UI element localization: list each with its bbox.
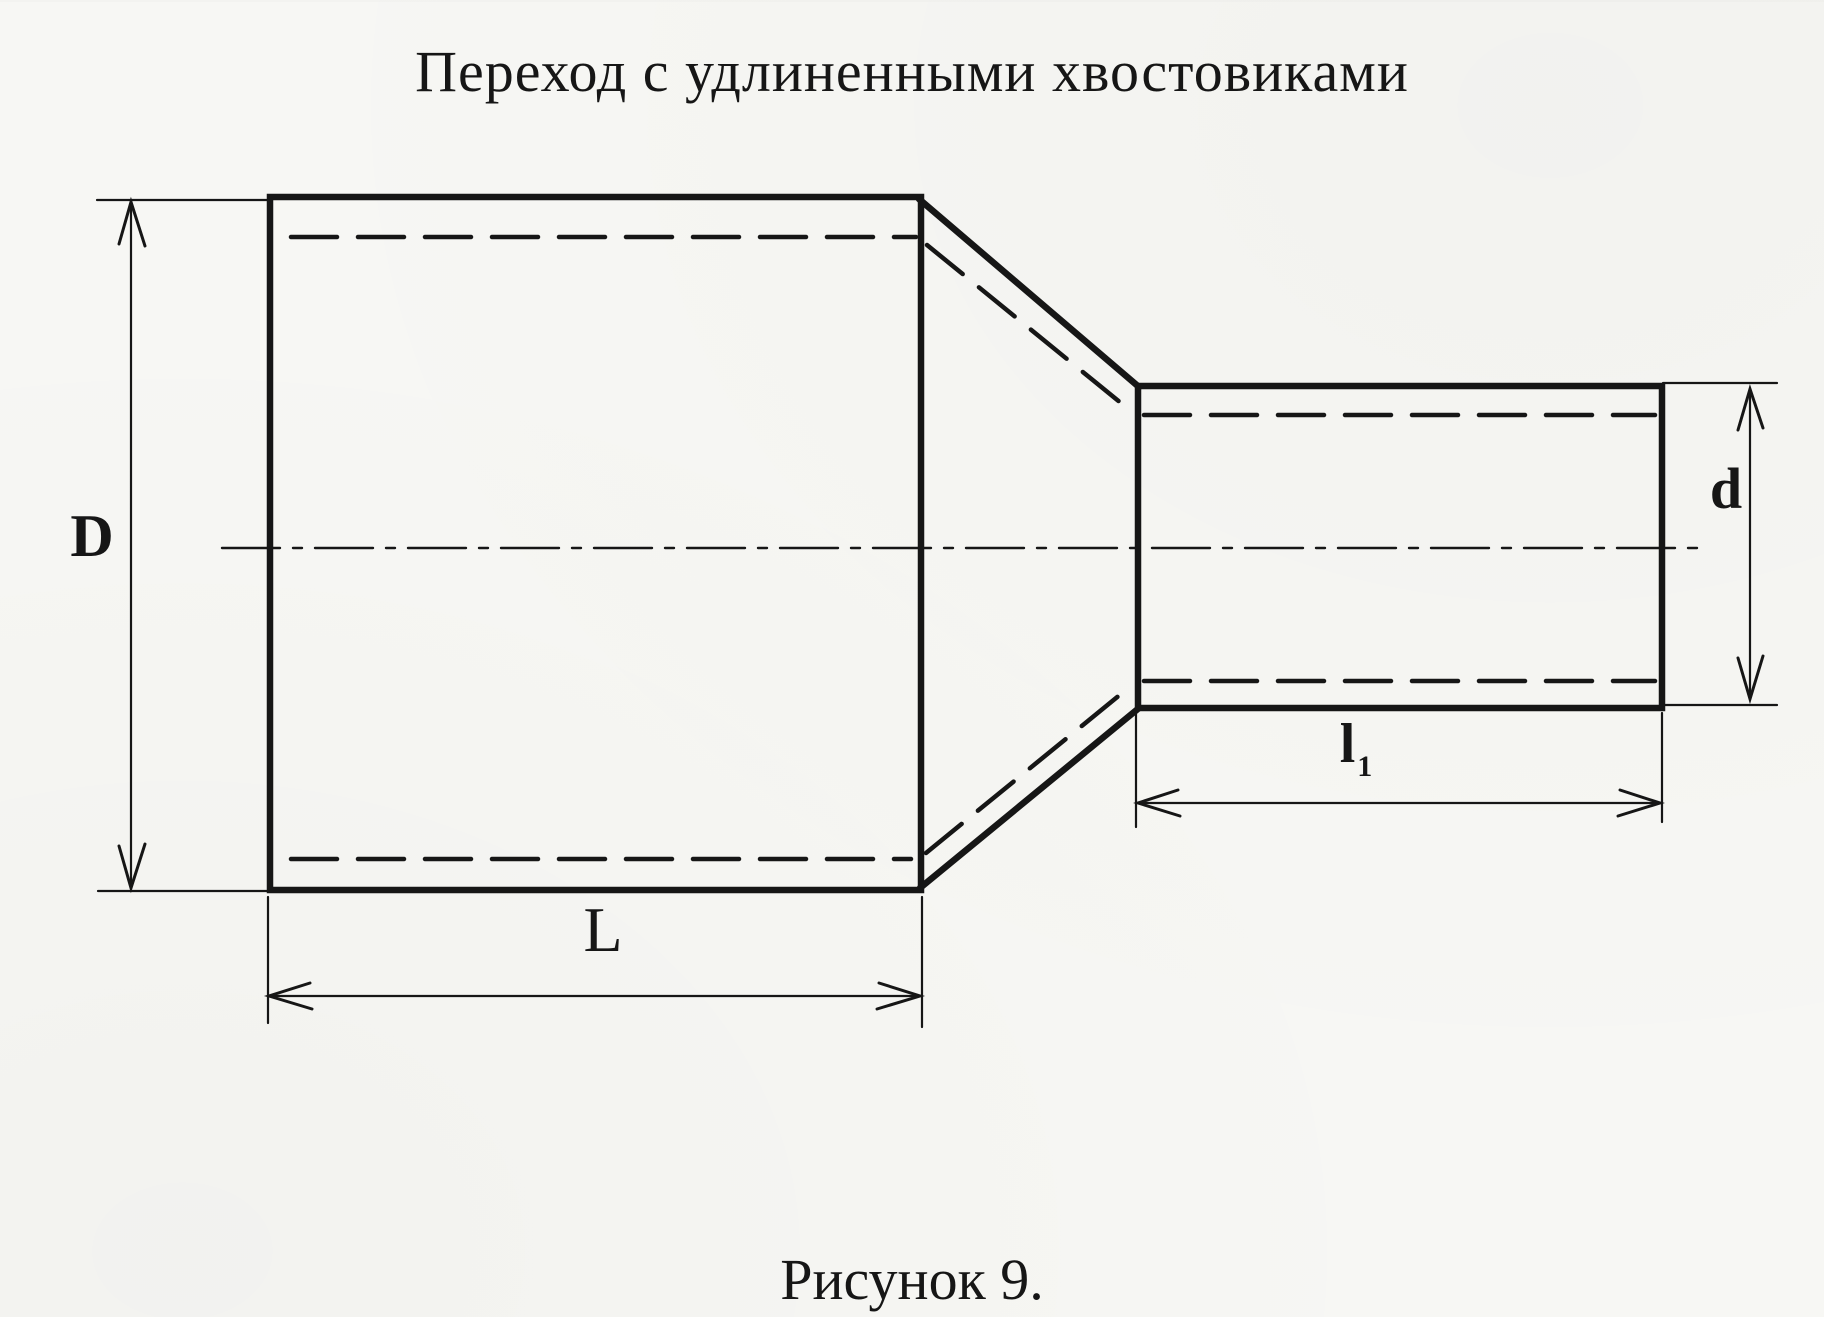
label-small-length: l1: [1326, 716, 1386, 782]
label-small-length-subscript: 1: [1357, 750, 1372, 783]
cone-top-edge: [919, 199, 1139, 387]
scanned-drawing-page: Переход с удлиненными хвостовиками: [0, 0, 1824, 1317]
cone-inner-top: [927, 245, 1132, 412]
label-large-diameter: D: [60, 506, 124, 566]
label-small-length-base: l: [1340, 713, 1356, 775]
dimension-l1: [1136, 713, 1662, 827]
cone-inner-bottom: [926, 685, 1132, 853]
label-large-length: L: [568, 898, 638, 962]
large-cylinder-outline: [270, 197, 921, 890]
label-small-diameter: d: [1694, 460, 1758, 518]
part-outline: [270, 197, 1662, 890]
small-cylinder-outline: [1138, 386, 1662, 708]
dimension-d: [1663, 383, 1777, 705]
cone-bottom-edge: [920, 708, 1139, 888]
reducer-diagram: [0, 0, 1824, 1317]
figure-caption: Рисунок 9.: [0, 1246, 1824, 1313]
